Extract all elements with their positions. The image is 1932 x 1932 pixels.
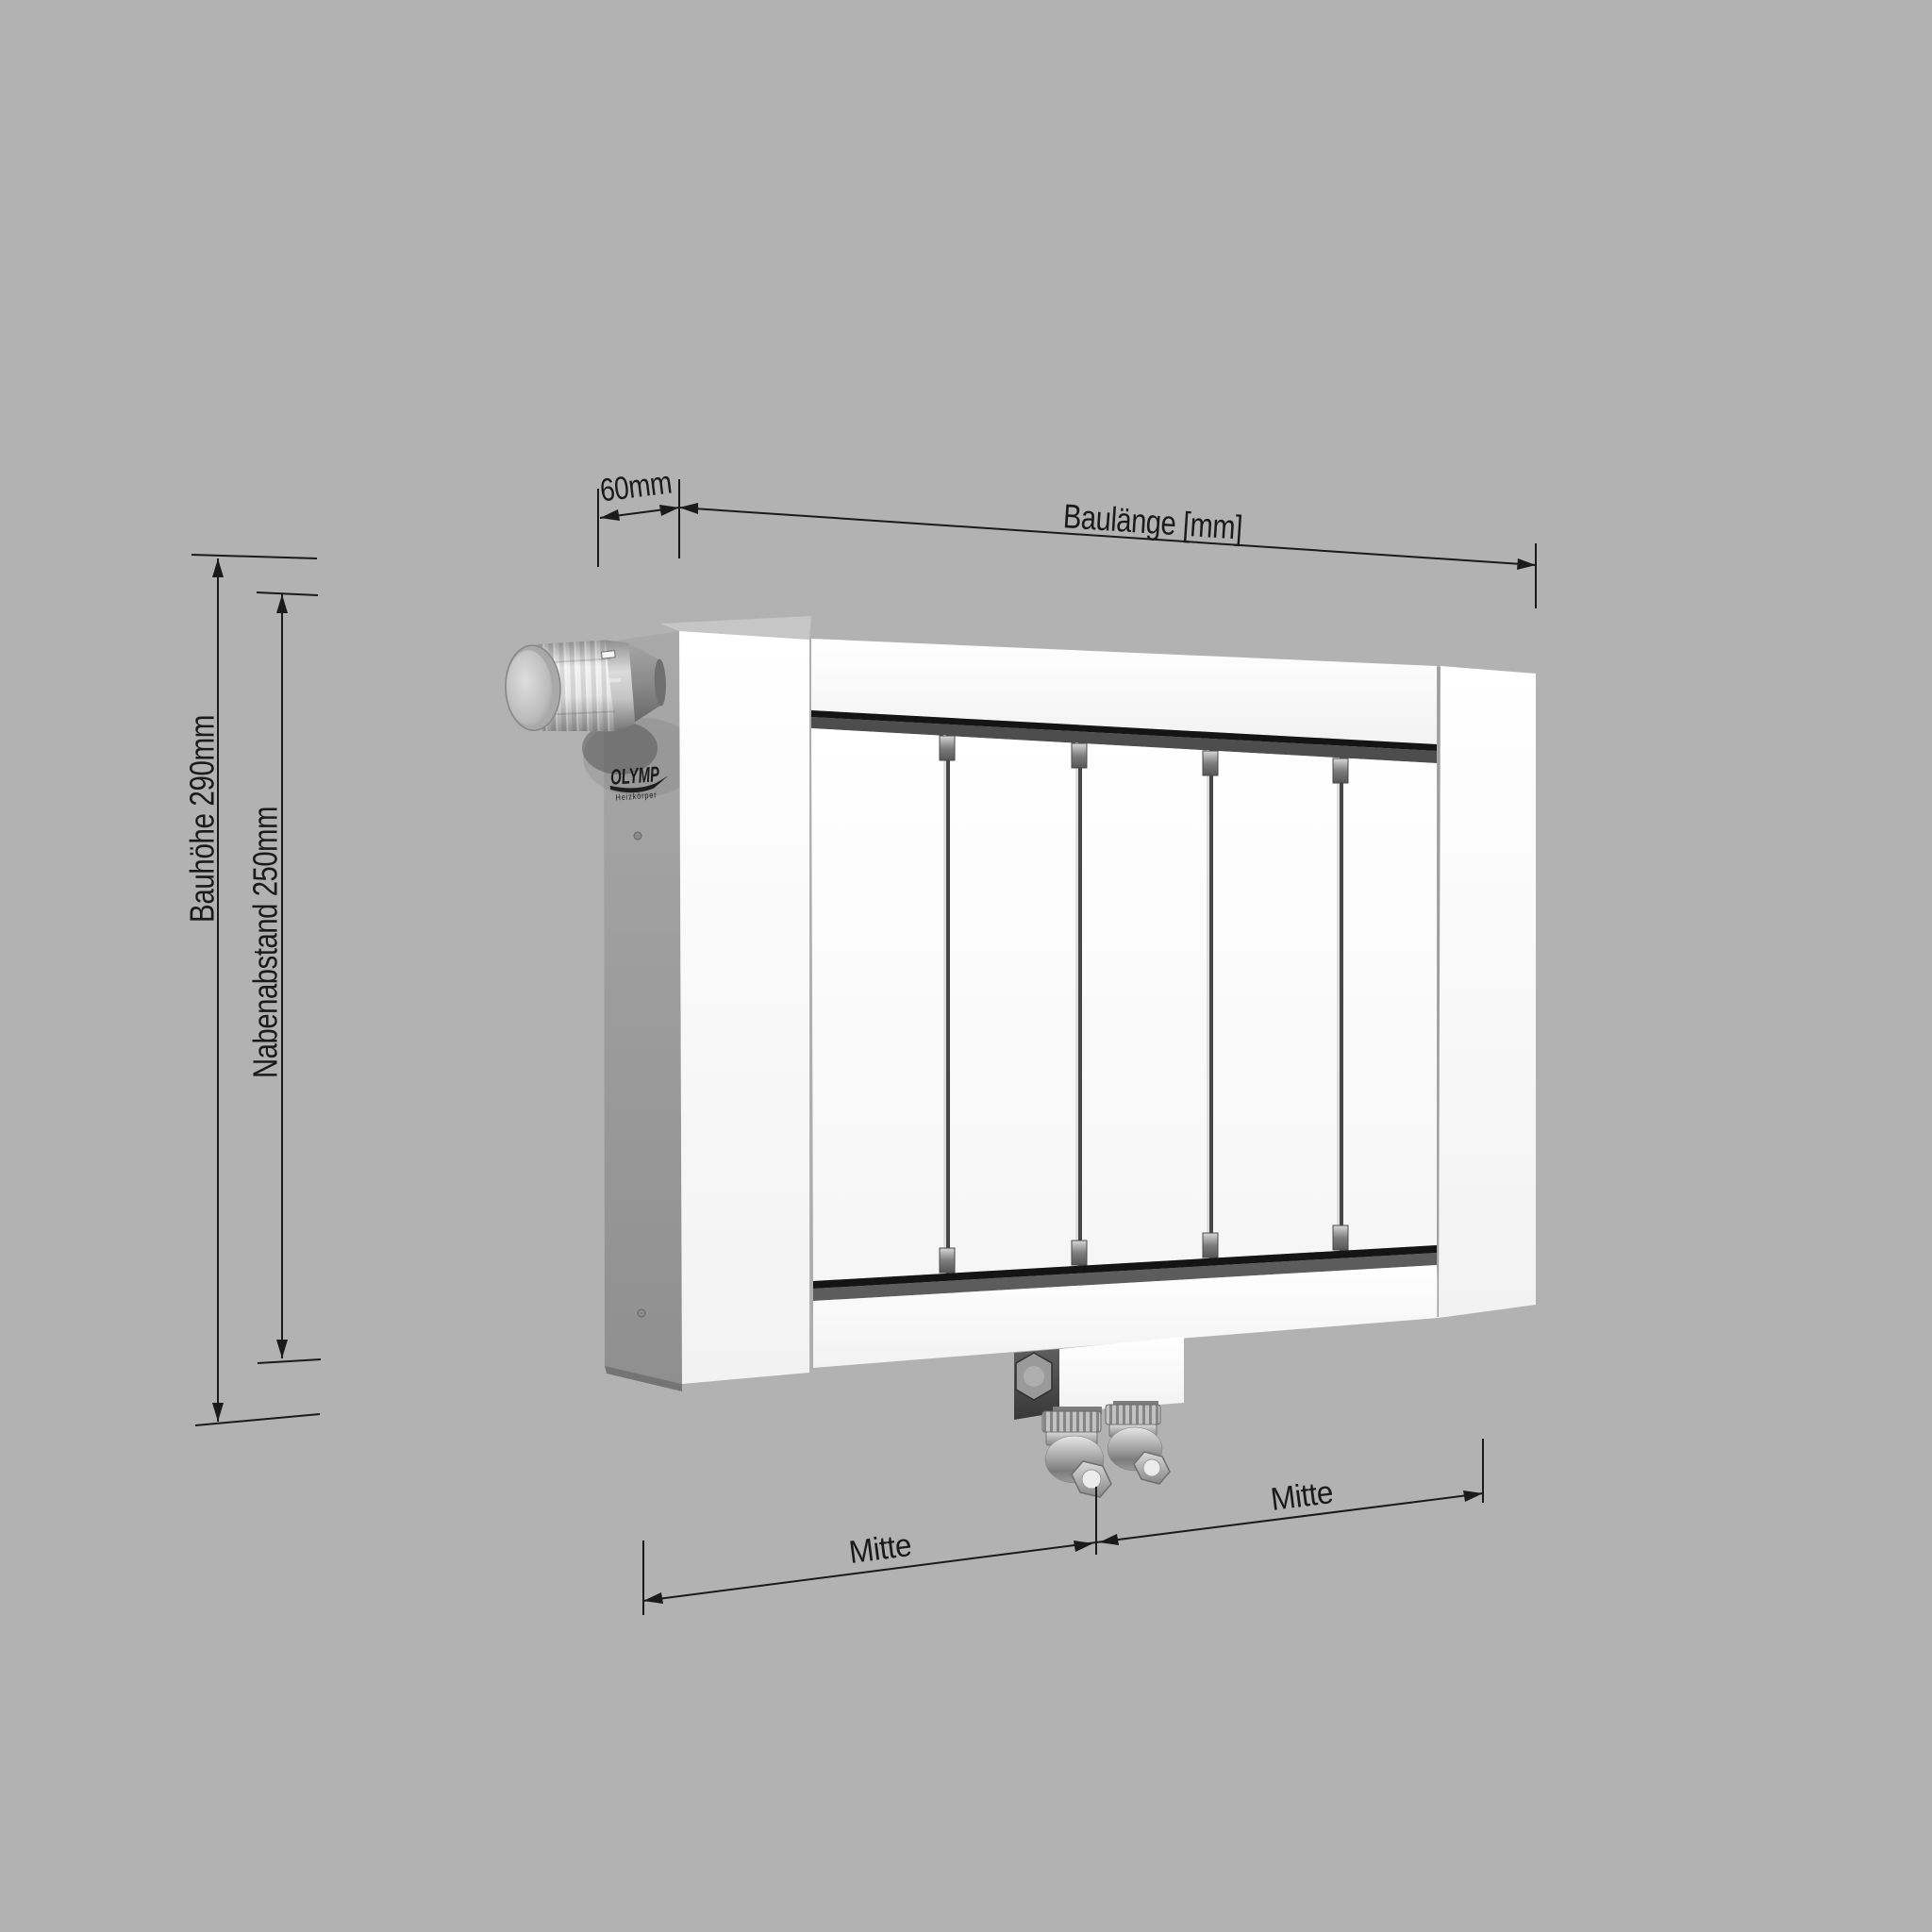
label-bauhoehe: Bauhöhe 290mm — [183, 715, 222, 923]
knob-indicator-mark — [609, 678, 621, 682]
radiator-dimension-drawing: OLYMP Heizkörper — [0, 0, 1932, 1932]
screw-icon — [638, 1309, 645, 1317]
left-panel-front-face — [679, 631, 809, 1384]
knob-indicator-tab — [601, 651, 615, 658]
right-panel-front-face — [1439, 666, 1536, 1318]
hex-bolt-face — [1024, 1366, 1044, 1387]
screw-icon — [634, 832, 641, 840]
technical-drawing-page: OLYMP Heizkörper — [0, 0, 1932, 1932]
label-nabenabstand: Nabenabstand 250mm — [246, 807, 285, 1078]
